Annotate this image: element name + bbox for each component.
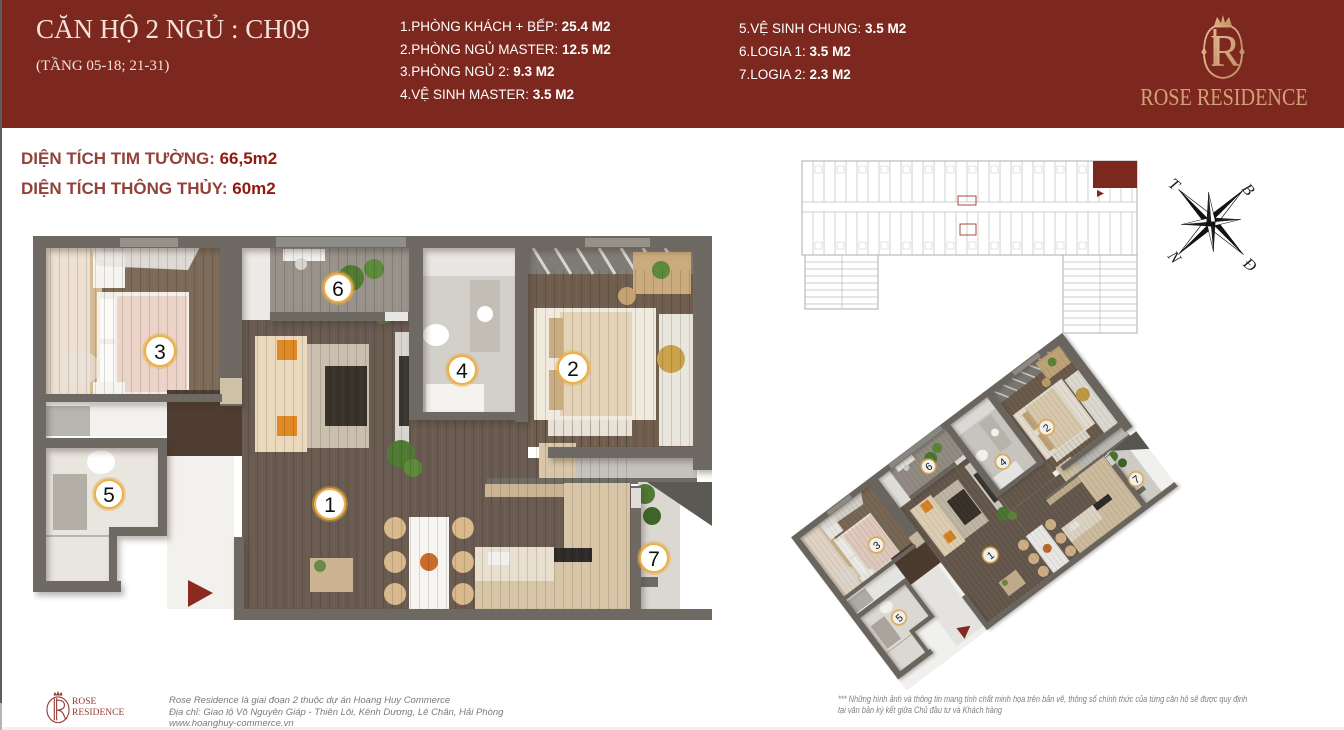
svg-text:6: 6	[332, 278, 344, 301]
svg-text:Đ: Đ	[1239, 254, 1260, 275]
svg-text:B: B	[1238, 181, 1257, 200]
svg-text:3: 3	[154, 341, 166, 364]
svg-text:7: 7	[648, 548, 660, 571]
svg-text:2: 2	[567, 358, 579, 381]
svg-text:4: 4	[456, 360, 468, 383]
svg-text:5: 5	[103, 484, 115, 507]
svg-text:1: 1	[324, 494, 336, 517]
